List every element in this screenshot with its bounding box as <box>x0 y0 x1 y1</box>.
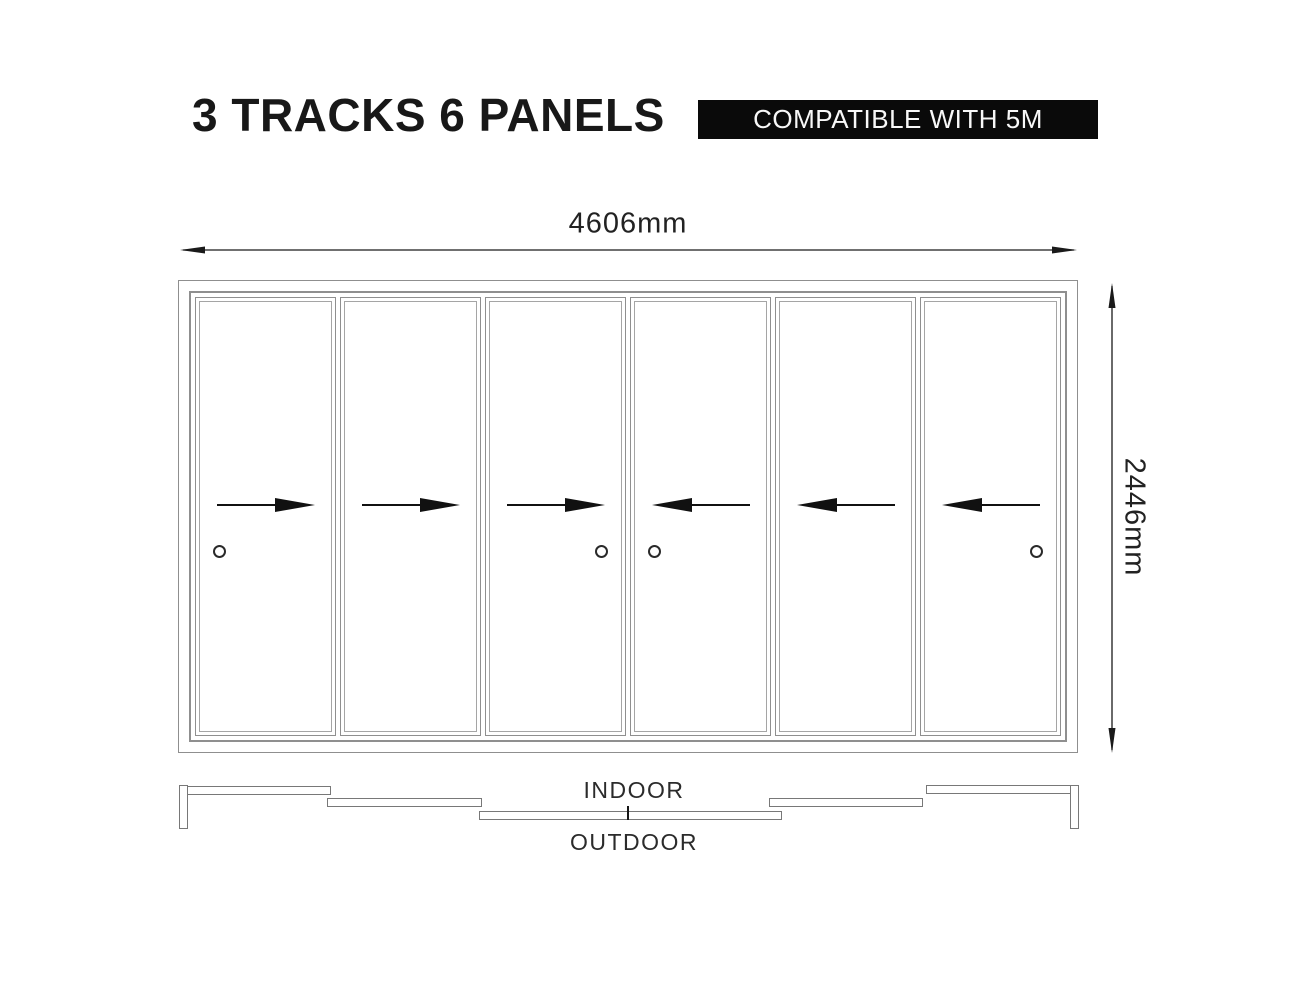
height-dimension-label: 2446mm <box>1118 458 1151 577</box>
glass-pane <box>344 301 477 732</box>
door-handle-icon <box>595 545 608 558</box>
glass-pane <box>924 301 1057 732</box>
door-panel-3 <box>485 297 626 736</box>
slide-direction-arrow-icon <box>652 498 750 512</box>
plan-track1-panel6 <box>926 785 1071 794</box>
slide-direction-arrow-icon <box>797 498 895 512</box>
door-panel-1 <box>195 297 336 736</box>
door-handle-icon <box>213 545 226 558</box>
glass-pane <box>779 301 912 732</box>
slide-direction-arrow-icon <box>942 498 1040 512</box>
plan-track1-panel1 <box>187 786 331 795</box>
door-handle-icon <box>1030 545 1043 558</box>
glass-pane <box>199 301 332 732</box>
plan-track2-panel5 <box>769 798 923 807</box>
slide-direction-arrow-icon <box>507 498 605 512</box>
plan-right-jamb <box>1070 785 1079 829</box>
width-dimension-label: 4606mm <box>569 208 688 241</box>
compatibility-badge: COMPATIBLE WITH 5M <box>698 100 1098 139</box>
plan-center-meeting-tick <box>627 806 629 820</box>
door-panel-2 <box>340 297 481 736</box>
slide-direction-arrow-icon <box>217 498 315 512</box>
door-panel-6 <box>920 297 1061 736</box>
glass-pane <box>634 301 767 732</box>
door-frame <box>178 280 1078 753</box>
slide-direction-arrow-icon <box>362 498 460 512</box>
outdoor-label: OUTDOOR <box>570 829 698 856</box>
plan-track2-panel2 <box>327 798 482 807</box>
glass-pane <box>489 301 622 732</box>
door-panel-4 <box>630 297 771 736</box>
door-handle-icon <box>648 545 661 558</box>
plan-track3-panels3-4 <box>479 811 782 820</box>
door-panel-5 <box>775 297 916 736</box>
diagram-canvas: 3 TRACKS 6 PANELS COMPATIBLE WITH 5M 460… <box>0 0 1300 1000</box>
panel-row <box>195 297 1061 736</box>
indoor-label: INDOOR <box>584 777 685 804</box>
page-title: 3 TRACKS 6 PANELS <box>192 88 665 142</box>
